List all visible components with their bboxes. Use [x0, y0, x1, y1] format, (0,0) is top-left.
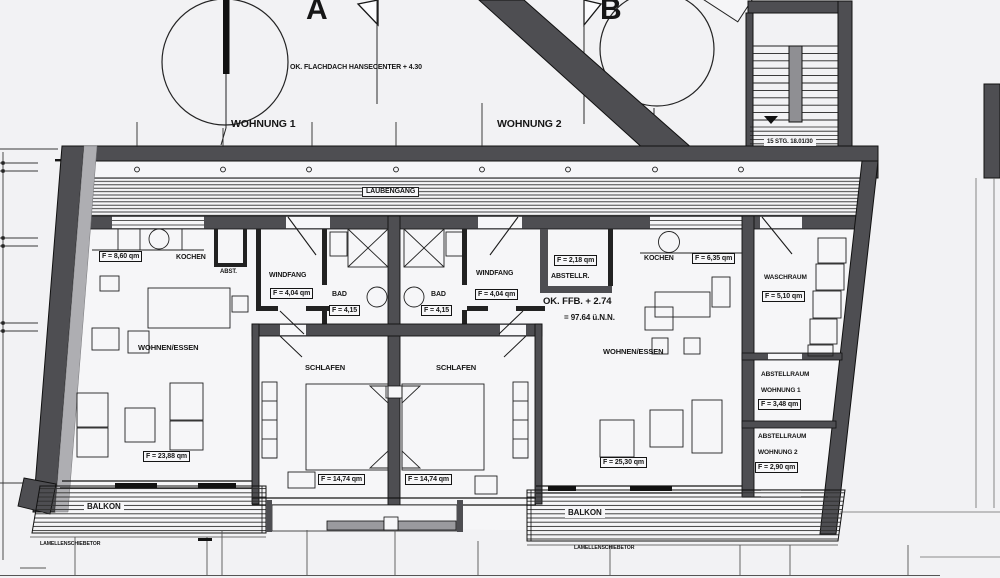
- room-label-wohnen-2: WOHNEN/ESSEN: [603, 348, 663, 356]
- schlafen-terrace: [266, 500, 463, 532]
- area-label-kochen-1: F = 8,60 qm: [99, 251, 142, 262]
- stair-count-note: 15 STG. 18.01/30: [764, 139, 816, 146]
- area-label-kochen-2: F = 6,35 qm: [692, 253, 735, 264]
- area-label-waschraum: F = 5,10 qm: [762, 291, 805, 302]
- apartment2-title: WOHNUNG 2: [497, 119, 561, 131]
- party-wall-center: [388, 216, 400, 506]
- area-label-bad-2: F = 4,15: [421, 305, 452, 316]
- area-label-windfang-1: F = 4,04 qm: [270, 288, 313, 299]
- room-label-abstellraum-w1-line2: WOHNUNG 1: [761, 387, 801, 394]
- room-label-windfang-2: WINDFANG: [476, 270, 513, 278]
- room-label-abstellraum-w2-line1: ABSTELLRAUM: [758, 433, 806, 440]
- room-label-wohnen-1: WOHNEN/ESSEN: [138, 344, 198, 352]
- laubengang-corridor: [86, 178, 868, 216]
- floor-level-note-line2: = 97.64 ü.N.N.: [564, 314, 615, 323]
- lamellenschiebetor-2-label: LAMELLENSCHIEBETOR: [574, 546, 634, 552]
- room-label-abstellraum-w1-line1: ABSTELLRAUM: [761, 371, 809, 378]
- room-label-waschraum: WASCHRAUM: [764, 274, 807, 281]
- balkon-1-label: BALKON: [84, 503, 124, 512]
- room-label-abstellraum-w2-line2: WOHNUNG 2: [758, 449, 798, 456]
- room-label-bad-1: BAD: [332, 291, 347, 299]
- balkon-1: [18, 478, 266, 537]
- roof-level-note: OK. FLACHDACH HANSECENTER + 4.30: [290, 64, 422, 72]
- area-label-schlafen-2: F = 14,74 qm: [405, 474, 452, 485]
- apartment1-title: WOHNUNG 1: [231, 119, 295, 131]
- corridor-label: LAUBENGANG: [362, 187, 419, 197]
- room-label-schlafen-1: SCHLAFEN: [305, 364, 345, 372]
- area-label-abstellraum-w2: F = 2,90 qm: [755, 462, 798, 473]
- area-label-windfang-2: F = 4,04 qm: [475, 289, 518, 300]
- lamellenschiebetor-1-label: LAMELLENSCHIEBETOR: [40, 542, 100, 548]
- area-label-schlafen-1: F = 14,74 qm: [318, 474, 365, 485]
- room-label-abst-1: ABST.: [220, 269, 237, 276]
- floor-plan-page: A B OK. FLACHDACH HANSECENTER + 4.30 WOH…: [0, 0, 1000, 578]
- room-label-schlafen-2: SCHLAFEN: [436, 364, 476, 372]
- area-label-wohnen-2: F = 25,30 qm: [600, 457, 647, 468]
- room-label-kochen-1: KOCHEN: [176, 254, 206, 262]
- room-label-kochen-2: KOCHEN: [644, 255, 674, 263]
- section-marker-b: B: [600, 0, 622, 26]
- balkon-2-label: BALKON: [565, 509, 605, 518]
- area-label-abstellraum-2: F = 2,18 qm: [554, 255, 597, 266]
- outer-wall-north: [62, 146, 878, 161]
- room-label-bad-2: BAD: [431, 291, 446, 299]
- area-label-abstellraum-w1: F = 3,48 qm: [758, 399, 801, 410]
- room-label-windfang-1: WINDFANG: [269, 272, 306, 280]
- stair-stringer: [789, 46, 802, 122]
- area-label-wohnen-1: F = 23,88 qm: [143, 451, 190, 462]
- area-label-bad-1: F = 4,15: [329, 305, 360, 316]
- floor-level-note-line1: OK. FFB. + 2.74: [543, 297, 611, 307]
- section-marker-a: A: [306, 0, 328, 26]
- room-label-abstellraum-2: ABSTELLR.: [551, 273, 589, 281]
